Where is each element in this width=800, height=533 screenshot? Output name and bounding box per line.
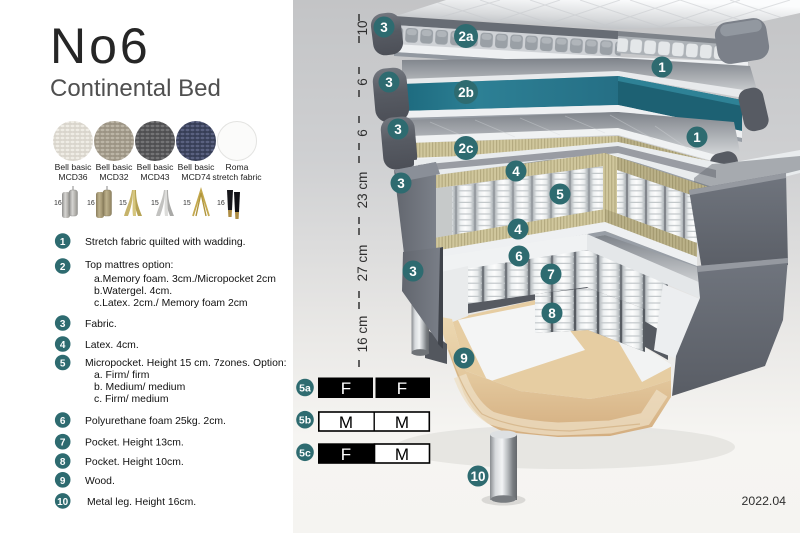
svg-text:2c: 2c xyxy=(458,141,474,156)
svg-text:MCD74: MCD74 xyxy=(181,172,210,182)
svg-text:c.Latex. 2cm./ Memory foam 2cm: c.Latex. 2cm./ Memory foam 2cm xyxy=(94,298,248,309)
svg-text:3: 3 xyxy=(380,20,388,35)
svg-text:6: 6 xyxy=(355,129,370,137)
svg-text:23 cm: 23 cm xyxy=(355,172,370,209)
svg-text:3: 3 xyxy=(409,264,417,279)
svg-text:1: 1 xyxy=(60,237,66,248)
svg-text:a.Memory foam. 3cm./Micropocke: a.Memory foam. 3cm./Micropocket 2cm xyxy=(94,274,276,285)
svg-text:F: F xyxy=(341,379,351,398)
svg-text:5c: 5c xyxy=(299,447,311,459)
svg-text:10: 10 xyxy=(355,20,370,35)
svg-text:15: 15 xyxy=(183,200,191,207)
svg-text:2a: 2a xyxy=(458,29,474,44)
svg-text:F: F xyxy=(397,379,407,398)
svg-text:Bell basic: Bell basic xyxy=(55,162,92,172)
svg-text:M: M xyxy=(339,413,353,432)
svg-text:8: 8 xyxy=(60,457,66,468)
svg-text:stretch fabric: stretch fabric xyxy=(212,172,262,182)
svg-text:27 cm: 27 cm xyxy=(355,245,370,282)
svg-text:Roma: Roma xyxy=(226,162,249,172)
svg-text:MCD36: MCD36 xyxy=(58,172,87,182)
svg-text:5: 5 xyxy=(60,359,66,370)
svg-text:4: 4 xyxy=(512,164,520,179)
svg-text:3: 3 xyxy=(60,319,66,330)
svg-text:F: F xyxy=(341,445,351,464)
svg-text:6: 6 xyxy=(515,249,523,264)
svg-text:2b: 2b xyxy=(458,85,474,100)
svg-text:Fabric.: Fabric. xyxy=(85,319,117,330)
svg-text:4: 4 xyxy=(514,222,522,237)
svg-text:15: 15 xyxy=(119,200,127,207)
svg-text:6: 6 xyxy=(60,416,66,427)
svg-text:Metal leg. Height 16cm.: Metal leg. Height 16cm. xyxy=(87,497,196,508)
svg-text:4: 4 xyxy=(60,340,66,351)
svg-text:9: 9 xyxy=(60,476,66,487)
svg-text:Pocket. Height 13cm.: Pocket. Height 13cm. xyxy=(85,438,184,449)
svg-text:Polyurethane foam 25kg. 2cm.: Polyurethane foam 25kg. 2cm. xyxy=(85,416,226,427)
svg-text:2022.04: 2022.04 xyxy=(742,494,787,508)
svg-text:Bell basic: Bell basic xyxy=(137,162,174,172)
svg-text:8: 8 xyxy=(548,306,556,321)
svg-text:7: 7 xyxy=(60,438,66,449)
svg-text:Top mattres option:: Top mattres option: xyxy=(85,260,173,271)
svg-text:MCD43: MCD43 xyxy=(140,172,169,182)
svg-text:1: 1 xyxy=(693,130,701,145)
svg-text:9: 9 xyxy=(460,351,468,366)
svg-text:16: 16 xyxy=(217,200,225,207)
svg-text:3: 3 xyxy=(385,75,393,90)
svg-text:5: 5 xyxy=(556,187,564,202)
svg-text:3: 3 xyxy=(397,176,405,191)
svg-text:1: 1 xyxy=(658,60,666,75)
svg-text:10: 10 xyxy=(57,497,69,508)
svg-text:2: 2 xyxy=(60,262,66,273)
svg-text:16: 16 xyxy=(54,200,62,207)
svg-text:c. Firm/ medium: c. Firm/ medium xyxy=(94,394,168,405)
svg-text:5b: 5b xyxy=(299,415,311,427)
svg-text:b.Watergel. 4cm.: b.Watergel. 4cm. xyxy=(94,286,172,297)
svg-text:Micropocket. Height 15 cm. 7zo: Micropocket. Height 15 cm. 7zones. Optio… xyxy=(85,358,287,369)
svg-text:Stretch fabric quilted with wa: Stretch fabric quilted with wadding. xyxy=(85,237,246,248)
svg-text:10: 10 xyxy=(470,469,485,484)
svg-text:MCD32: MCD32 xyxy=(99,172,128,182)
svg-text:16 cm: 16 cm xyxy=(355,316,370,353)
svg-text:5a: 5a xyxy=(299,383,311,395)
svg-text:M: M xyxy=(395,413,409,432)
svg-text:b. Medium/ medium: b. Medium/ medium xyxy=(94,382,185,393)
svg-text:Wood.: Wood. xyxy=(85,476,115,487)
svg-text:7: 7 xyxy=(547,267,555,282)
svg-text:6: 6 xyxy=(355,78,370,86)
svg-text:3: 3 xyxy=(394,122,402,137)
svg-text:a. Firm/ firm: a. Firm/ firm xyxy=(94,370,149,381)
svg-text:Latex. 4cm.: Latex. 4cm. xyxy=(85,340,139,351)
svg-text:Bell basic: Bell basic xyxy=(96,162,133,172)
svg-text:Pocket. Height 10cm.: Pocket. Height 10cm. xyxy=(85,457,184,468)
svg-text:M: M xyxy=(395,445,409,464)
svg-text:15: 15 xyxy=(151,200,159,207)
svg-text:Bell basic: Bell basic xyxy=(178,162,215,172)
svg-text:16: 16 xyxy=(87,200,95,207)
